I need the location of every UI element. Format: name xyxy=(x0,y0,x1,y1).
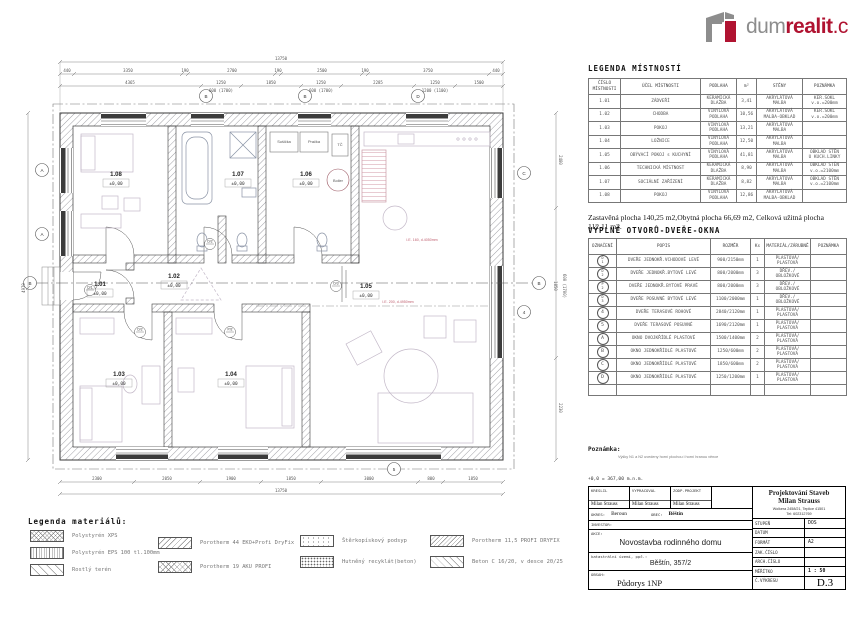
opening-mark-circle: D xyxy=(597,372,609,384)
utility-label-1: I.E. 160, d.4050mm xyxy=(406,238,437,242)
logo-wordmark: dumrealit.cz xyxy=(746,15,848,39)
room-legend-table: ČÍSLOMÍSTNOSTIÚČEL MÍSTNOSTIPODLAHAm²STĚ… xyxy=(588,78,847,203)
okres-value: Beroun xyxy=(611,511,627,517)
vypracoval-label: VYPRACOVAL xyxy=(630,487,670,494)
material-label: Štěrkopískový podsyp xyxy=(342,538,407,544)
dim: 3000 xyxy=(364,476,374,481)
section-mark-right: B xyxy=(537,281,540,286)
material-swatch-podsyp xyxy=(300,535,334,547)
dim-bottom-total: 13750 xyxy=(275,488,288,493)
room-elevation: ±0,00 xyxy=(359,293,373,299)
dim: 1250 xyxy=(316,80,326,85)
meta-row-stupen: STUPEŇDOS xyxy=(753,519,845,529)
label-tc: TČ xyxy=(337,142,342,147)
opening-mark-circle: D1 xyxy=(597,255,609,267)
material-item: Hutněný recyklát(beton) xyxy=(300,556,417,568)
utility-label-2: I.E. 200, d.4950mm xyxy=(382,300,413,304)
room-number: 1.04 xyxy=(225,372,237,378)
material-item: Porotherm 19 AKU PROFI xyxy=(158,561,294,573)
dim: 2230 xyxy=(558,403,563,413)
material-label: Rostlý terén xyxy=(72,567,111,573)
table-row: COKNO JEDNOKŘÍDLÉ PLASTOVÉ1850/600mm2PLA… xyxy=(589,359,847,372)
room-elevation: ±0,00 xyxy=(299,181,313,187)
drawing-number-value: D.3 xyxy=(805,577,845,589)
dim: 2700 xyxy=(227,68,237,73)
dim: 800 xyxy=(427,476,435,481)
material-item: Polystyrén EPS 100 tl.100mm xyxy=(30,547,160,559)
room-elevation: ±0,00 xyxy=(224,381,238,387)
window-mark: 5 xyxy=(393,467,396,472)
zodp-projekt-cell: ZODP.PROJEKT Milan Strauss xyxy=(671,487,712,508)
window-mark: B xyxy=(204,94,207,99)
material-label: Polystyrén EPS 100 tl.100mm xyxy=(72,550,160,556)
dim: 3750 xyxy=(423,68,433,73)
materials-column: Štěrkopískový podsypHutněný recyklát(bet… xyxy=(300,535,417,568)
logo-part-cz: .cz xyxy=(833,15,848,38)
table-row: D3DVEŘE POSUVNÉ BYTOVÉ LEVÉ1100/2000mm1D… xyxy=(589,294,847,307)
meta-label: STUPEŇ xyxy=(753,519,805,528)
room-number: 1.08 xyxy=(110,172,122,178)
company-name-line1: Projektování Staveb xyxy=(754,489,844,497)
table-row: D2DVEŘE JEDNOKŘ.BYTOVÉ LEVÉ800/2000mm3DŘ… xyxy=(589,268,847,281)
akce-row: AKCE: Novostavba rodinného domu xyxy=(589,530,752,554)
obec-value: Běštín xyxy=(669,511,683,517)
material-item: Rostlý terén xyxy=(30,564,160,576)
material-label: Polystyrén XPS xyxy=(72,533,117,539)
floor-plan: Sušička Pračka TČ Boiler I.E. 160, d.40 xyxy=(6,48,584,510)
door-mark: P/2 xyxy=(228,328,233,332)
company-phone: Tel: 602312769 xyxy=(754,512,844,516)
meta-row-format: FORMÁTA2 xyxy=(753,538,845,548)
obec-label: OBEC: xyxy=(649,511,665,518)
material-item: Beton C 16/20, v desce 20/25 xyxy=(430,556,563,568)
kreslil-name: Milan Strauss xyxy=(589,500,629,508)
material-item: Porotherm 11,5 PROFI DRYFIX xyxy=(430,535,563,547)
table-row: 1.05OBÝVACÍ POKOJ s KUCHYNÍVINYLOVÁPODLA… xyxy=(589,149,847,163)
material-swatch-xps xyxy=(30,530,64,542)
table-row: 1.02CHODBAVINYLOVÁPODLAHA10,56AKRYLÁTOVÁ… xyxy=(589,108,847,122)
empty-cell xyxy=(712,487,752,508)
okres-obec-row: OKRES: Beroun OBEC: Běštín xyxy=(589,509,752,521)
dim: 2500 xyxy=(317,68,327,73)
vypracoval-name: Milan Strauss xyxy=(630,500,670,508)
material-label: Porotherm 44 EKO+Profi DryFix xyxy=(200,540,294,546)
label-pracka: Pračka xyxy=(308,139,321,144)
meta-label: FORMÁT xyxy=(753,538,805,547)
openings-table: OZNAČENÍPOPISROZMĚRKsMATERIÁL/ZÁRUBNĚPOZ… xyxy=(588,238,847,396)
meta-label: DATUM xyxy=(753,529,805,538)
materials-column: Polystyrén XPSPolystyrén EPS 100 tl.100m… xyxy=(30,530,160,576)
meta-label: ARCH.ČÍSLO xyxy=(753,558,805,567)
material-swatch-eps xyxy=(30,547,64,559)
openings-title: VÝPLNĚ OTVORŮ-DVEŘE-OKNA xyxy=(588,226,720,235)
room-legend-title: LEGENDA MÍSTNOSTÍ xyxy=(588,64,682,73)
meta-label: MĚŘÍTKO xyxy=(753,567,805,576)
dim: 1850 xyxy=(468,476,478,481)
label-susicka: Sušička xyxy=(277,139,291,144)
table-row: 1.01ZÁDVEŘÍKERAMICKÁDLAŽBA3,41AKRYLÁTOVÁ… xyxy=(589,95,847,109)
material-label: Porotherm 19 AKU PROFI xyxy=(200,564,271,570)
meta-row-meritko: MĚŘÍTKO1 : 50 xyxy=(753,567,845,577)
note-label: Poznámka: xyxy=(588,446,621,453)
meta-row-datum: DATUM xyxy=(753,529,845,539)
door-mark: D/2 xyxy=(207,240,212,244)
dim: 1900 xyxy=(226,476,236,481)
dim: 1500 xyxy=(474,80,484,85)
room-number: 1.07 xyxy=(232,172,244,178)
opening-mark-circle: 4 xyxy=(597,307,609,319)
opening-mark-circle: D3 xyxy=(597,294,609,306)
table-row: 1.08POKOJVINYLOVÁPODLAHA12,86AKRYLÁTOVÁM… xyxy=(589,189,847,203)
room-number: 1.02 xyxy=(168,274,180,280)
dim-left: 4970 xyxy=(21,283,26,293)
material-label: Porotherm 11,5 PROFI DRYFIX xyxy=(472,538,560,544)
table-header-row: ČÍSLOMÍSTNOSTIÚČEL MÍSTNOSTIPODLAHAm²STĚ… xyxy=(589,79,847,95)
dim: 440 xyxy=(63,68,71,73)
dim: 190 xyxy=(361,68,369,73)
dim: 1850 xyxy=(266,80,276,85)
material-item: Porotherm 44 EKO+Profi DryFix xyxy=(158,537,294,549)
table-row: 4DVEŘE TERASOVÉ ROHOVÉ2840/2120mm1PLASTO… xyxy=(589,307,847,320)
dim: 1200 (1100) xyxy=(422,88,449,93)
zodp-projekt-name: Milan Strauss xyxy=(671,500,711,508)
logo-part-realit: realit xyxy=(785,15,832,38)
table-row: D1DVEŘE JEDNOKŘ.VCHODOVÉ LEVÉ900/2150mm1… xyxy=(589,255,847,268)
dim: 1250 xyxy=(430,80,440,85)
dim: 2285 xyxy=(373,80,383,85)
title-block-left: KRESLIL Milan Strauss VYPRACOVAL Milan S… xyxy=(589,487,753,589)
obsah-value: Půdorys 1NP xyxy=(617,578,752,588)
opening-mark-circle: B xyxy=(597,346,609,358)
investor-row: INVESTOR: xyxy=(589,521,752,530)
material-swatch-p44 xyxy=(158,537,192,549)
dim: 4365 xyxy=(125,80,135,85)
materials-legend-title: Legenda materiálů: xyxy=(28,517,127,526)
table-row: AOKNO DVOJKŘÍDLÉ PLASTOVÉ1500/1400mm2PLA… xyxy=(589,333,847,346)
materials-column: Porotherm 44 EKO+Profi DryFixPorotherm 1… xyxy=(158,537,294,573)
kreslil-label: KRESLIL xyxy=(589,487,629,494)
material-swatch-recyklat xyxy=(300,556,334,568)
company-name-line2: Milan Strauss xyxy=(754,497,844,505)
drawing-number-row: Č.VÝKRESU D.3 xyxy=(753,577,845,589)
zodp-projekt-label: ZODP.PROJEKT xyxy=(671,487,711,494)
meta-row-zak-cislo: ZAK.ČÍSLO xyxy=(753,548,845,558)
table-row: 5DVEŘE TERASOVÉ POSUVNÉ1690/2120mm1PLAST… xyxy=(589,320,847,333)
dim: 3350 xyxy=(123,68,133,73)
obsah-row: OBSAH: Půdorys 1NP xyxy=(589,571,752,589)
meta-value: A2 xyxy=(805,540,845,545)
opening-mark-circle: P2 xyxy=(597,281,609,293)
table-row: 1.03POKOJVINYLOVÁPODLAHA13,21AKRYLÁTOVÁM… xyxy=(589,122,847,136)
obsah-label: OBSAH: xyxy=(589,571,752,578)
dim: 600 (1700) xyxy=(209,88,233,93)
dim: 600 (1700) xyxy=(309,88,333,93)
room-number: 1.05 xyxy=(360,284,372,290)
logo-part-dum: dum xyxy=(746,15,785,38)
window-mark: B xyxy=(303,94,306,99)
vypracoval-cell: VYPRACOVAL Milan Strauss xyxy=(630,487,671,508)
dim: 600 (1700) xyxy=(562,274,567,298)
table-row: 1.04LOŽNICEVINYLOVÁPODLAHA12,50AKRYLÁTOV… xyxy=(589,135,847,149)
okres-label: OKRES: xyxy=(589,511,607,518)
dim: 1250 xyxy=(216,80,226,85)
table-header-row: OZNAČENÍPOPISROZMĚRKsMATERIÁL/ZÁRUBNĚPOZ… xyxy=(589,239,847,255)
room-elevation: ±0,00 xyxy=(112,381,126,387)
dim: 1850 xyxy=(286,476,296,481)
exterior-walls xyxy=(60,113,503,460)
material-swatch-teren xyxy=(30,564,64,576)
dumrealit-logo-icon xyxy=(704,10,740,44)
meta-value: DOS xyxy=(805,521,845,526)
table-row: 1.07SOCIÁLNÍ ZAŘÍZENÍKERAMICKÁDLAŽBA8,82… xyxy=(589,176,847,190)
dim: 2050 xyxy=(162,476,172,481)
room-elevation: ±0,00 xyxy=(93,291,107,297)
door-mark: D/3 xyxy=(333,282,338,286)
title-block-right: Projektování Staveb Milan Strauss Wolker… xyxy=(753,487,845,589)
table-row: DOKNO JEDNOKŘÍDLÉ PLASTOVÉ1250/1200mm1PL… xyxy=(589,372,847,385)
opening-mark-circle: A xyxy=(597,333,609,345)
company-block: Projektování Staveb Milan Strauss Wolker… xyxy=(753,487,845,519)
table-row: P2DVEŘE JEDNOKŘ.BYTOVÉ PRAVÉ800/2000mm3D… xyxy=(589,281,847,294)
people-row: KRESLIL Milan Strauss VYPRACOVAL Milan S… xyxy=(589,487,752,509)
parcel-value: Běštín, 357/2 xyxy=(589,560,752,567)
opening-mark-circle: C xyxy=(597,359,609,371)
section-mark-left: B xyxy=(28,281,31,286)
dim: 440 xyxy=(492,68,500,73)
meta-label: ZAK.ČÍSLO xyxy=(753,548,805,557)
label-boiler: Boiler xyxy=(333,178,344,183)
opening-mark-circle: 5 xyxy=(597,320,609,332)
materials-column: Porotherm 11,5 PROFI DRYFIXBeton C 16/20… xyxy=(430,535,563,568)
drawing-number-label: Č.VÝKRESU xyxy=(753,577,805,589)
table-empty-row xyxy=(589,385,847,396)
material-item: Polystyrén XPS xyxy=(30,530,160,542)
material-swatch-p19 xyxy=(158,561,192,573)
dim: 190 xyxy=(181,68,189,73)
window-mark: 4 xyxy=(523,310,526,315)
material-swatch-beton xyxy=(430,556,464,568)
material-label: Beton C 16/20, v desce 20/25 xyxy=(472,559,563,565)
material-item: Štěrkopískový podsyp xyxy=(300,535,417,547)
room-elevation: ±0,00 xyxy=(231,181,245,187)
parcel-label: katastrální území, ppč.: xyxy=(589,553,752,560)
room-elevation: ±0,00 xyxy=(109,181,123,187)
parcel-row: katastrální území, ppč.: Běštín, 357/2 xyxy=(589,553,752,571)
door-mark: D/2 xyxy=(137,328,142,332)
dim: 2480 xyxy=(558,155,563,165)
kreslil-cell: KRESLIL Milan Strauss xyxy=(589,487,630,508)
material-swatch-p115 xyxy=(430,535,464,547)
meta-value: 1 : 50 xyxy=(805,569,845,574)
opening-mark-circle: D2 xyxy=(597,268,609,280)
room-number: 1.03 xyxy=(113,372,125,378)
investor-label: INVESTOR: xyxy=(589,521,614,528)
akce-label: AKCE: xyxy=(589,530,752,537)
dim: 2300 xyxy=(92,476,102,481)
table-row: 1.06TECHNICKÁ MÍSTNOSTKERAMICKÁDLAŽBA8,9… xyxy=(589,162,847,176)
table-row: BOKNO JEDNOKŘÍDLÉ PLASTOVÉ1250/600mm2PLA… xyxy=(589,346,847,359)
meta-row-arch-cislo: ARCH.ČÍSLO xyxy=(753,558,845,568)
dim: 190 xyxy=(274,68,282,73)
dim-top-total: 13750 xyxy=(275,56,288,61)
drawing-sheet: { "logo": {"part1": "dum", "part2": "rea… xyxy=(0,0,848,636)
dumrealit-logo: dumrealit.cz xyxy=(704,10,848,44)
akce-value: Novostavba rodinného domu xyxy=(589,538,752,547)
room-elevation: ±0,00 xyxy=(167,283,181,289)
note-text: Výšky N1 a N2 uvedeny horní plochou i ho… xyxy=(618,455,818,459)
room-number: 1.06 xyxy=(300,172,312,178)
datum-elevation: +0,0 = 367,00 m.n.m. xyxy=(588,477,643,482)
title-block: KRESLIL Milan Strauss VYPRACOVAL Milan S… xyxy=(588,486,846,590)
dim: 1850 xyxy=(553,281,558,291)
room-number: 1.01 xyxy=(94,282,106,288)
material-label: Hutněný recyklát(beton) xyxy=(342,559,417,565)
